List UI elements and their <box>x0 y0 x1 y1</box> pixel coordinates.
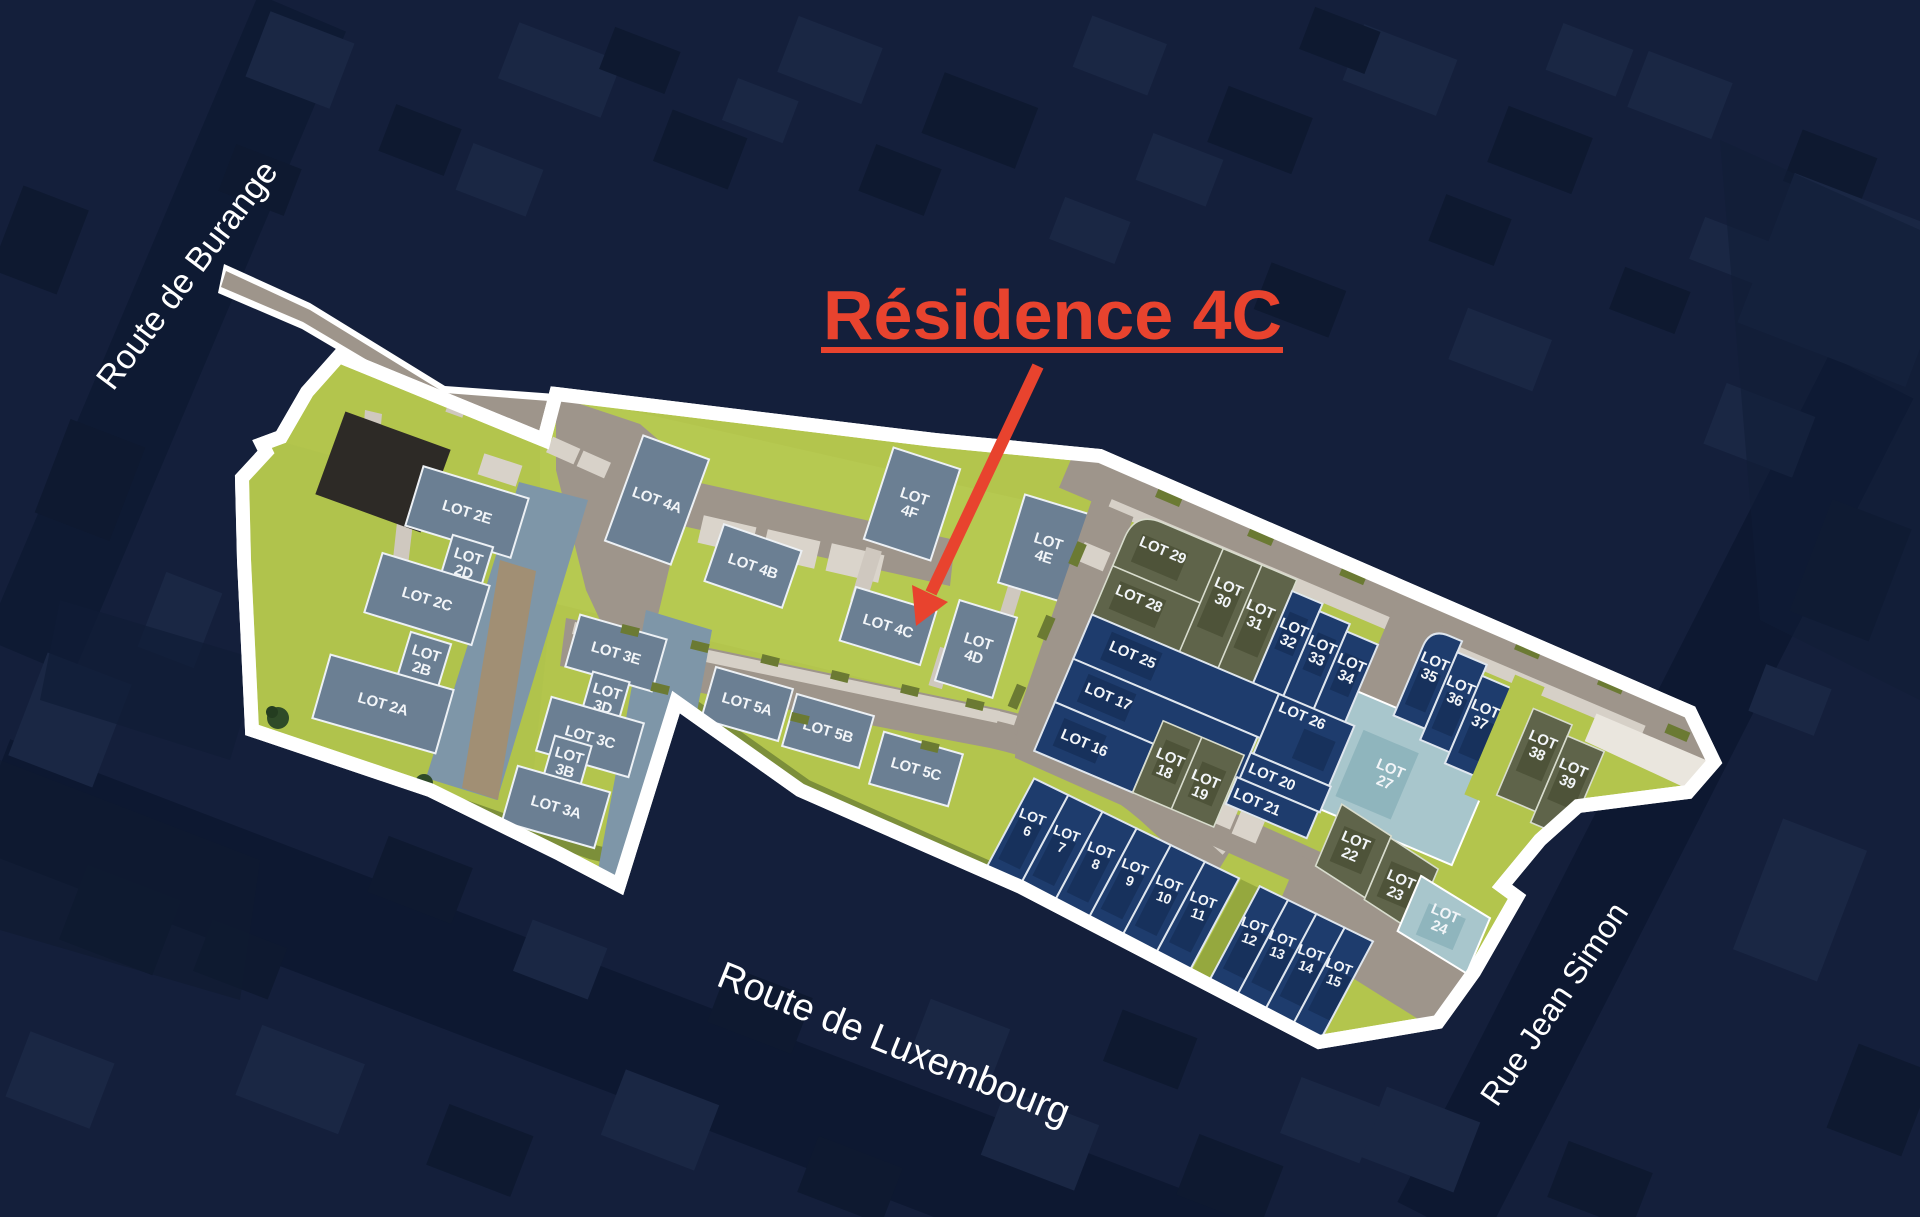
svg-text:Résidence 4C: Résidence 4C <box>823 276 1282 354</box>
